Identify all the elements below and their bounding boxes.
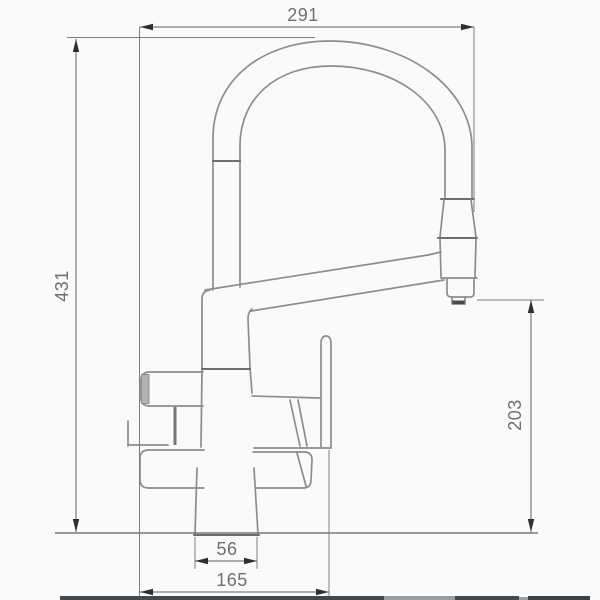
dimension-label-overall-height: 431 <box>52 270 72 302</box>
dimension-label-handle-span: 165 <box>216 570 248 590</box>
body-right-edge <box>248 309 252 393</box>
right-handle <box>252 336 331 488</box>
arrow-up <box>73 39 79 52</box>
right-stem-diagonal-line <box>297 453 306 486</box>
spout-arm <box>205 252 444 311</box>
right-lever-outline <box>321 336 331 448</box>
dimension-label-outlet-height: 203 <box>505 399 525 431</box>
dimension-base-width: 56 <box>195 537 257 569</box>
arrow-right <box>316 589 329 595</box>
arrow-down <box>528 519 534 532</box>
body-left-edge-lower <box>201 370 202 447</box>
faucet-body <box>194 290 259 535</box>
band-segment-dark-3 <box>528 596 590 600</box>
sprayer-grip-left-upper <box>440 200 444 237</box>
dimension-label-top-width: 291 <box>287 5 319 25</box>
gooseneck-outer-curve <box>213 41 472 198</box>
nozzle-housing <box>447 279 474 297</box>
body-left-edge-upper <box>202 290 210 368</box>
right-connector-edge <box>252 396 320 398</box>
arm-bottom-edge <box>251 280 444 311</box>
arrow-left <box>195 558 208 564</box>
dimension-top-width: 291 <box>140 5 475 597</box>
dimension-handle-span: 165 <box>140 450 329 597</box>
bottom-edge-band <box>60 596 590 600</box>
dimension-label-base-width: 56 <box>216 539 237 559</box>
arrow-down <box>73 519 79 532</box>
sprayer-grip-left-lower <box>440 239 441 277</box>
arrow-up <box>528 300 534 313</box>
left-valve-bracket <box>140 450 204 488</box>
dimension-overall-height: 431 <box>52 38 315 533</box>
arrow-right <box>461 24 474 30</box>
left-lever-outline <box>141 372 203 406</box>
dimension-outlet-height: 203 <box>477 300 544 532</box>
base-column-right-edge <box>254 468 258 534</box>
faucet-technical-drawing: 291 431 203 56 <box>0 0 600 600</box>
band-segment-dark-2 <box>455 596 519 600</box>
arrow-left <box>140 24 153 30</box>
right-valve-bracket <box>253 452 312 488</box>
band-segment-dark-1 <box>60 596 384 600</box>
gooseneck-inner-curve <box>240 66 445 198</box>
arrow-right <box>244 558 257 564</box>
left-riser-tube <box>213 160 240 290</box>
left-lever-end-cap <box>142 375 150 404</box>
screenshot-root: 291 431 203 56 <box>0 0 600 600</box>
sprayer-grip-right-lower <box>475 239 476 277</box>
band-segment-light-1 <box>384 596 455 600</box>
aerator-outlet-shading <box>453 301 465 305</box>
base-column-left-edge <box>195 468 197 534</box>
arrow-left <box>140 589 153 595</box>
spout-gooseneck-arc <box>213 41 472 198</box>
sprayer-head <box>438 199 477 304</box>
